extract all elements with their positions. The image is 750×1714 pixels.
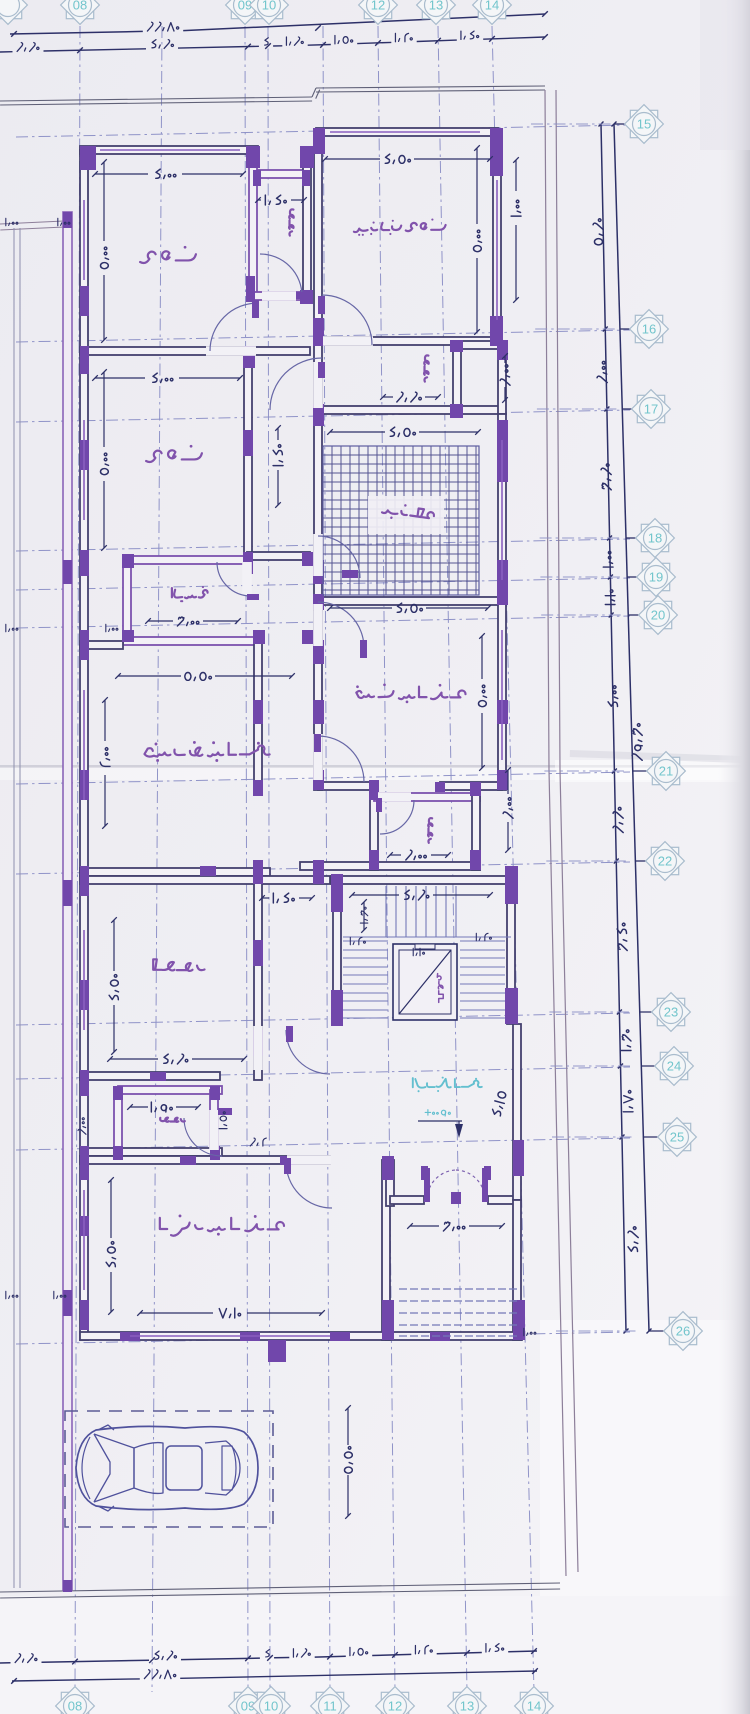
svg-text:23: 23 [664,1005,678,1020]
svg-text:12: 12 [388,1699,402,1714]
svg-text:12: 12 [371,0,385,13]
svg-text:22: 22 [658,854,672,869]
svg-text:19: 19 [649,570,663,585]
svg-text:25: 25 [670,1130,684,1145]
svg-text:14: 14 [485,0,499,13]
svg-text:24: 24 [667,1059,681,1074]
svg-text:17: 17 [644,402,658,417]
svg-text:11: 11 [323,1699,337,1714]
svg-text:08: 08 [73,0,87,13]
svg-text:13: 13 [429,0,443,13]
svg-text:18: 18 [648,531,662,546]
svg-text:13: 13 [460,1699,474,1714]
svg-text:26: 26 [676,1324,690,1339]
svg-text:14: 14 [527,1699,541,1714]
svg-text:08: 08 [68,1699,82,1714]
svg-text:10: 10 [262,0,276,13]
svg-text:10: 10 [264,1699,278,1714]
svg-text:21: 21 [659,764,673,779]
svg-text:15: 15 [637,117,651,132]
svg-text:16: 16 [642,322,656,337]
svg-text:20: 20 [651,608,665,623]
